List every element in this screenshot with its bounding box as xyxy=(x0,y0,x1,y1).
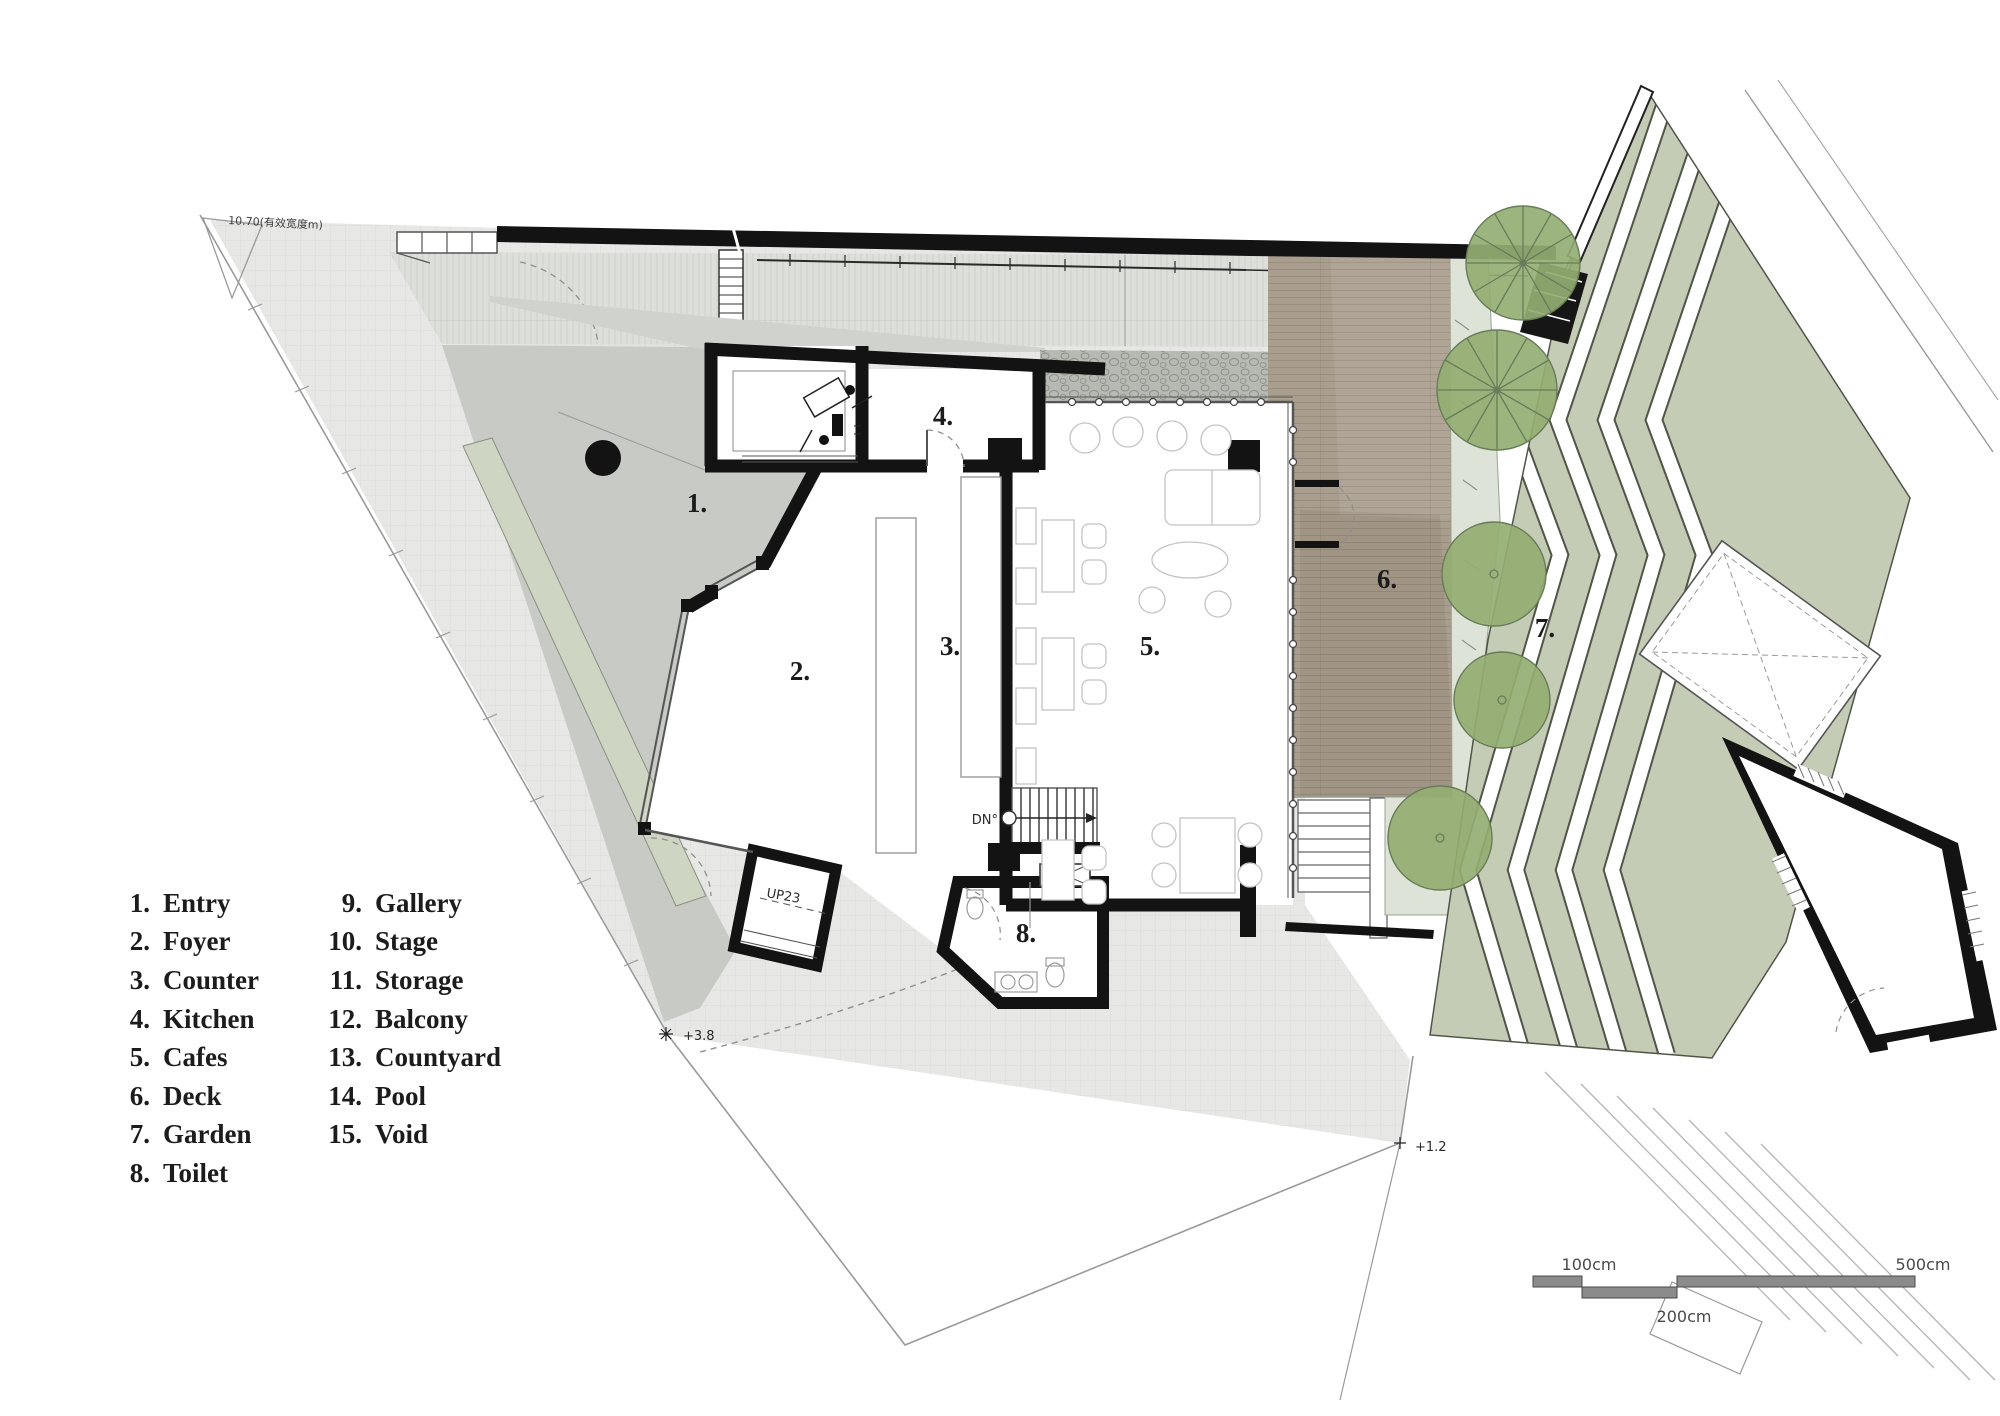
legend-num: 8. xyxy=(58,1158,150,1189)
legend-label: Counter xyxy=(163,965,259,996)
legend-label: Deck xyxy=(163,1081,221,1112)
legend-num: 12. xyxy=(250,1004,362,1035)
legend-num: 15. xyxy=(250,1119,362,1150)
tree-icon xyxy=(1437,330,1557,450)
label-kitchen: 4. xyxy=(933,401,953,431)
wall-pier xyxy=(1228,440,1260,472)
legend-num: 4. xyxy=(58,1004,150,1035)
legend-label: Storage xyxy=(375,965,463,996)
legend-item-storage: 11.Storage xyxy=(250,961,501,1000)
label-level-a: +3.8 xyxy=(683,1029,715,1044)
legend-num: 13. xyxy=(250,1042,362,1073)
legend-num: 7. xyxy=(58,1119,150,1150)
legend-item-cafes: 5.Cafes xyxy=(58,1038,259,1077)
label-counter: 3. xyxy=(940,631,960,661)
label-cafes: 5. xyxy=(1140,631,1160,661)
legend-item-counter: 3.Counter xyxy=(58,961,259,1000)
legend-label: Toilet xyxy=(163,1158,228,1189)
legend-num: 9. xyxy=(250,888,362,919)
legend-label: Foyer xyxy=(163,926,230,957)
legend-label: Void xyxy=(375,1119,428,1150)
legend-item-gallery: 9.Gallery xyxy=(250,884,501,923)
legend-item-toilet: 8.Toilet xyxy=(58,1154,259,1193)
label-deck: 6. xyxy=(1377,564,1397,594)
legend-num: 1. xyxy=(58,888,150,919)
deck xyxy=(1268,250,1478,797)
scale-label-100: 100cm xyxy=(1562,1255,1617,1274)
legend-item-garden: 7.Garden xyxy=(58,1116,259,1155)
up-stair-room xyxy=(734,850,836,966)
legend-label: Cafes xyxy=(163,1042,227,1073)
legend-label: Balcony xyxy=(375,1004,468,1035)
legend-label: Stage xyxy=(375,926,438,957)
tree-icon xyxy=(1388,786,1492,890)
legend-item-entry: 1.Entry xyxy=(58,884,259,923)
legend-item-deck: 6.Deck xyxy=(58,1077,259,1116)
legend-label: Countyard xyxy=(375,1042,501,1073)
label-entry: 1. xyxy=(687,488,707,518)
legend-label: Kitchen xyxy=(163,1004,255,1035)
label-level-b: +1.2 xyxy=(1415,1140,1447,1155)
legend-item-stage: 10.Stage xyxy=(250,923,501,962)
legend-item-pool: 14.Pool xyxy=(250,1077,501,1116)
legend-label: Gallery xyxy=(375,888,462,919)
floor-plan-canvas: 1. 2. 3. 4. 5. 6. 7. 8. DN° UP23 +3.8 +1… xyxy=(0,0,2000,1416)
wall-pier xyxy=(988,438,1022,468)
tree-icon xyxy=(1466,206,1580,320)
legend-num: 10. xyxy=(250,926,362,957)
legend-num: 3. xyxy=(58,965,150,996)
legend-num: 6. xyxy=(58,1081,150,1112)
legend-label: Entry xyxy=(163,888,231,919)
legend-num: 5. xyxy=(58,1042,150,1073)
column-dot xyxy=(585,440,621,476)
scale-label-500: 500cm xyxy=(1896,1255,1951,1274)
driveway-hatching xyxy=(1545,1072,1995,1380)
legend-column-1: 1.Entry 2.Foyer 3.Counter 4.Kitchen 5.Ca… xyxy=(58,884,259,1193)
building xyxy=(638,343,1354,1003)
floor-plan-drawing: 1. 2. 3. 4. 5. 6. 7. 8. DN° UP23 +3.8 +1… xyxy=(0,0,2000,1416)
legend-num: 2. xyxy=(58,926,150,957)
legend-item-countyard: 13.Countyard xyxy=(250,1038,501,1077)
label-down: DN° xyxy=(972,813,998,828)
tree-icon xyxy=(1442,522,1546,626)
legend-item-foyer: 2.Foyer xyxy=(58,923,259,962)
legend-item-balcony: 12.Balcony xyxy=(250,1000,501,1039)
scale-label-200: 200cm xyxy=(1657,1307,1712,1326)
service-room-floor xyxy=(711,346,862,466)
legend-item-kitchen: 4.Kitchen xyxy=(58,1000,259,1039)
tree-icon xyxy=(1454,652,1550,748)
legend-item-void: 15.Void xyxy=(250,1116,501,1155)
legend-column-2: 9.Gallery 10.Stage 11.Storage 12.Balcony… xyxy=(250,884,501,1154)
label-garden: 7. xyxy=(1535,613,1555,643)
legend-num: 11. xyxy=(250,965,362,996)
legend-label: Pool xyxy=(375,1081,426,1112)
wall-pier xyxy=(1240,845,1256,937)
legend-label: Garden xyxy=(163,1119,252,1150)
pebble-band xyxy=(1040,350,1300,404)
label-toilet: 8. xyxy=(1016,918,1036,948)
legend-num: 14. xyxy=(250,1081,362,1112)
label-foyer: 2. xyxy=(790,656,810,686)
